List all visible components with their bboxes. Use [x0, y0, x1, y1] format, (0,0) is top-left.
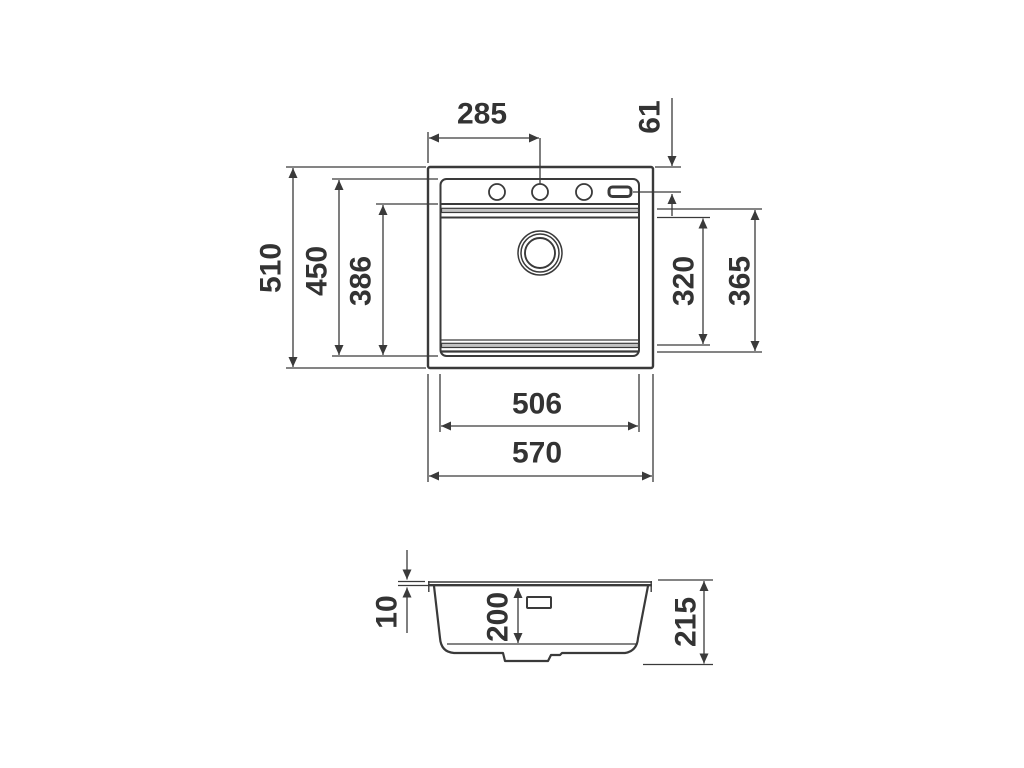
dim-rim-height: 10	[371, 550, 429, 633]
top-view	[428, 167, 653, 368]
deck-band	[442, 208, 639, 212]
dim-label-bowl-depth-inner: 320	[668, 256, 701, 306]
drain-middle-ring	[521, 234, 559, 272]
dim-faucet-inset: 61	[633, 98, 681, 216]
dim-faucet-offset: 285	[428, 98, 540, 185]
dim-label-faucet-inset: 61	[634, 100, 667, 133]
dim-label-overall-width: 570	[512, 437, 562, 470]
overflow-opening	[527, 597, 551, 608]
drain-inner-ring	[525, 238, 555, 268]
dim-label-inner-width: 506	[512, 388, 562, 421]
bottom-band	[442, 343, 639, 347]
sink-technical-drawing-page: 285 61 510 450 386 320 365	[0, 0, 1024, 768]
dim-label-overall-depth: 510	[255, 243, 288, 293]
dim-label-rim-height: 10	[371, 595, 404, 628]
overflow-slot	[609, 187, 631, 197]
dim-label-front-to-bowl-depth: 386	[345, 256, 378, 306]
dim-label-bowl-depth-section: 200	[482, 592, 515, 642]
dim-label-bowl-depth-outer: 365	[724, 256, 757, 306]
dim-front-to-bowl-depth: 386	[345, 204, 439, 355]
dim-overall-depth: 510	[255, 167, 427, 368]
dim-bowl-depth-inner: 320	[657, 218, 710, 346]
faucet-hole-left	[489, 184, 505, 200]
dim-label-overall-height: 215	[670, 597, 703, 647]
dim-overall-height: 215	[643, 580, 713, 665]
dim-label-inner-depth: 450	[301, 246, 334, 296]
dim-inner-width: 506	[440, 374, 639, 432]
dim-bowl-depth-section: 200	[482, 588, 519, 643]
faucet-hole-center	[532, 184, 548, 200]
section-view	[428, 581, 652, 661]
dim-label-faucet-offset: 285	[457, 98, 507, 131]
faucet-hole-right	[576, 184, 592, 200]
sink-dimension-drawing: 285 61 510 450 386 320 365	[0, 0, 1024, 768]
